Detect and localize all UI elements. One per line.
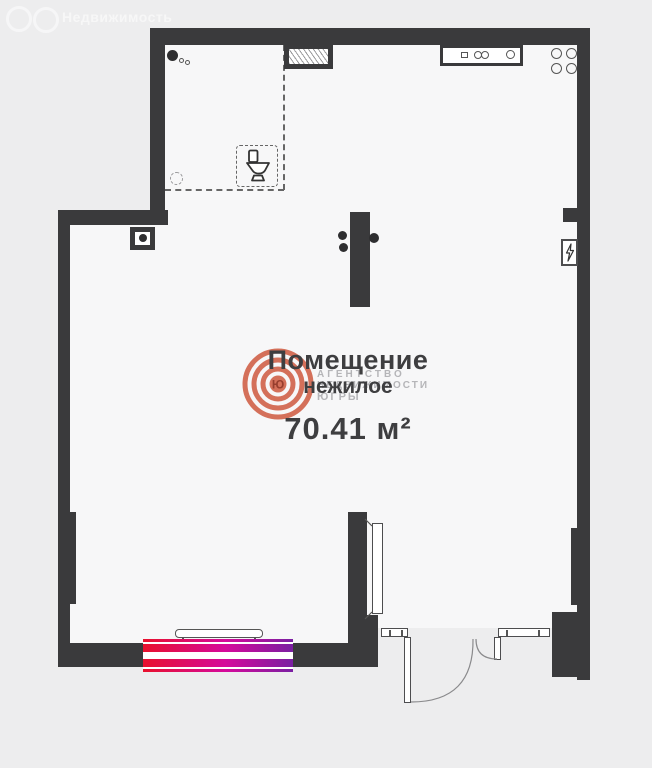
wall-upper-left [150,28,165,222]
riser-dot [167,50,178,61]
stove-burner-1 [551,48,562,59]
toilet-icon [242,149,274,183]
wall-central-upper [350,212,370,307]
wall-right-stub [563,208,578,222]
sliding-door-ticks [360,515,384,623]
floor-drain-dashed-circle [170,172,183,185]
room-subtitle: нежилое [240,376,456,397]
wall-mid-left-horizontal [58,210,168,225]
entrance-door-swing-arcs [395,630,520,712]
sink-circle-2 [481,51,489,59]
wall-bottom-right-block [552,612,590,677]
counter-detail-square [461,52,468,58]
pilaster-right [571,528,578,605]
stove-burner-2 [566,48,577,59]
vent-shaft-hatch [289,49,328,64]
outlet-dot-3 [369,233,379,243]
brand-logo-circle-1 [6,6,32,32]
wall-top [150,28,590,45]
radiator [175,629,263,638]
sidelight-right-tick-2 [538,630,540,636]
outlet-dot-2 [339,243,348,252]
outlet-dot-1 [338,231,347,240]
room-area: 70.41 м² [240,411,456,447]
lightning-icon [561,239,578,266]
pilaster-left [58,512,76,604]
stove-burner-4 [566,63,577,74]
room-label-block: Помещение нежилое 70.41 м² [240,346,456,447]
room-title: Помещение [240,346,456,374]
riser-small-circle-2 [185,60,190,65]
faucet-circle [506,50,515,59]
stove-burner-3 [551,63,562,74]
floorplan-image: Ю АГЕНТСТВО НЕДВИЖИМОСТИ ЮГРЫ Помещение … [0,0,652,768]
facade-gradient-window [143,639,293,672]
riser-small-circle-1 [179,58,184,63]
bathroom-zone-dashed-line-horizontal [165,189,284,191]
sidelight-left-tick-1 [389,630,391,636]
brand-watermark-text: Недвижимость [62,9,172,25]
shaft-column-dot [139,234,147,242]
wall-right [577,28,590,680]
brand-logo-circle-2 [33,7,59,33]
